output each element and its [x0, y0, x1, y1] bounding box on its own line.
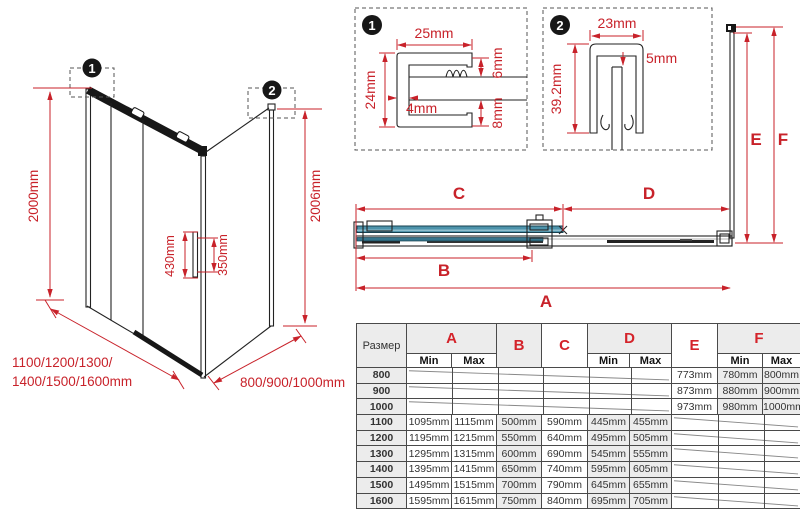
detail-2-rail-profile: 2 23mm 5mm 39.2mm	[543, 8, 712, 150]
na-cell	[672, 493, 800, 509]
callout-2: 2	[248, 81, 295, 119]
isometric-enclosure-drawing: 1 2 2000mm 2006mm 430mm	[0, 0, 350, 430]
dim-b-label: B	[438, 261, 450, 280]
width-sizes-line2: 1400/1500/1600mm	[12, 374, 132, 389]
b-cell: 550mm	[497, 430, 542, 446]
height-left-dim: 2000mm	[26, 170, 41, 223]
d-min-cell: 445mm	[588, 415, 630, 431]
d-max-cell: 705mm	[630, 493, 672, 509]
width-sizes-line1: 1100/1200/1300/	[12, 355, 113, 370]
dim-a-label: A	[540, 292, 552, 311]
f-min-cell: 780mm	[718, 368, 763, 384]
c-cell: 740mm	[542, 462, 588, 478]
a-max-cell: 1515mm	[452, 477, 497, 493]
detail2-top-dim: 23mm	[598, 15, 637, 31]
col-a-header: A	[407, 324, 497, 354]
col-b-header: B	[497, 324, 542, 368]
size-cell: 1200	[357, 430, 407, 446]
detail2-gap-dim: 5mm	[646, 50, 677, 66]
callout-1-number: 1	[88, 61, 95, 76]
na-cell	[672, 415, 800, 431]
detail1-web-dim: 4mm	[406, 100, 437, 116]
table-header-row: Размер A B C D E F	[357, 324, 800, 354]
na-cell	[407, 383, 672, 399]
f-min-header: Min	[718, 354, 763, 368]
handle-spacing-dim: 350mm	[216, 234, 230, 276]
na-cell	[672, 462, 800, 478]
d-min-header: Min	[588, 354, 630, 368]
a-max-cell: 1615mm	[452, 493, 497, 509]
table-row: 1500 1495mm 1515mm 700mm 790mm 645mm 655…	[357, 477, 800, 493]
a-max-cell: 1115mm	[452, 415, 497, 431]
c-cell: 590mm	[542, 415, 588, 431]
a-max-cell: 1315mm	[452, 446, 497, 462]
size-cell: 1100	[357, 415, 407, 431]
a-min-cell: 1095mm	[407, 415, 452, 431]
size-cell: 1500	[357, 477, 407, 493]
plan-dimensions: C D B A E F	[356, 27, 788, 311]
d-max-cell: 555mm	[630, 446, 672, 462]
table-row: 1100 1095mm 1115mm 500mm 590mm 445mm 455…	[357, 415, 800, 431]
d-max-cell: 605mm	[630, 462, 672, 478]
table-row: 1600 1595mm 1615mm 750mm 840mm 695mm 705…	[357, 493, 800, 509]
c-cell: 640mm	[542, 430, 588, 446]
f-min-cell: 880mm	[718, 383, 763, 399]
d-max-cell: 455mm	[630, 415, 672, 431]
size-cell: 800	[357, 368, 407, 384]
table-row: 800 773mm 780mm 800mm	[357, 368, 800, 384]
enclosure-structure	[86, 89, 275, 378]
e-cell: 973mm	[672, 399, 718, 415]
na-cell	[672, 477, 800, 493]
na-cell	[407, 368, 672, 384]
table-row: 1000 973mm 980mm 1000mm	[357, 399, 800, 415]
b-cell: 700mm	[497, 477, 542, 493]
detail-1-wall-profile: 1 25mm 24mm 4mm 6mm 8mm	[355, 8, 527, 150]
a-min-cell: 1595mm	[407, 493, 452, 509]
col-f-header: F	[718, 324, 800, 354]
size-dimension-table: Размер A B C D E F Min Max Min Max Min M…	[356, 323, 800, 509]
a-max-header: Max	[452, 354, 497, 368]
c-cell: 840mm	[542, 493, 588, 509]
door-handle	[193, 232, 201, 277]
a-min-cell: 1195mm	[407, 430, 452, 446]
d-max-cell: 655mm	[630, 477, 672, 493]
b-cell: 500mm	[497, 415, 542, 431]
height-right-dim: 2006mm	[308, 170, 323, 223]
e-cell: 773mm	[672, 368, 718, 384]
a-min-cell: 1395mm	[407, 462, 452, 478]
na-cell	[672, 446, 800, 462]
col-e-header: E	[672, 324, 718, 368]
e-cell: 873mm	[672, 383, 718, 399]
dim-f-label: F	[778, 130, 788, 149]
table-row: 1200 1195mm 1215mm 550mm 640mm 495mm 505…	[357, 430, 800, 446]
a-max-cell: 1215mm	[452, 430, 497, 446]
detail1-gap-top-dim: 6mm	[489, 47, 505, 78]
d-min-cell: 495mm	[588, 430, 630, 446]
detail-2-number: 2	[556, 18, 563, 33]
table-row: 1400 1395mm 1415mm 650mm 740mm 595mm 605…	[357, 462, 800, 478]
c-cell: 790mm	[542, 477, 588, 493]
size-cell: 1600	[357, 493, 407, 509]
depth-sizes: 800/900/1000mm	[240, 375, 345, 390]
a-min-cell: 1295mm	[407, 446, 452, 462]
size-cell: 1300	[357, 446, 407, 462]
a-min-header: Min	[407, 354, 452, 368]
na-cell	[407, 399, 672, 415]
gasket-icon	[446, 70, 467, 77]
size-cell: 900	[357, 383, 407, 399]
na-cell	[672, 430, 800, 446]
profile-details-and-plan-view: 1 25mm 24mm 4mm 6mm 8mm	[350, 0, 800, 322]
detail1-left-dim: 24mm	[362, 71, 378, 110]
size-header-cell: Размер	[357, 324, 407, 368]
b-cell: 750mm	[497, 493, 542, 509]
detail1-top-dim: 25mm	[415, 25, 454, 41]
size-cell: 1400	[357, 462, 407, 478]
d-min-cell: 595mm	[588, 462, 630, 478]
c-cell: 690mm	[542, 446, 588, 462]
d-min-cell: 695mm	[588, 493, 630, 509]
dim-d-label: D	[643, 184, 655, 203]
size-cell: 1000	[357, 399, 407, 415]
col-d-header: D	[588, 324, 672, 354]
dim-e-label: E	[750, 130, 761, 149]
f-min-cell: 980mm	[718, 399, 763, 415]
f-max-cell: 800mm	[763, 368, 800, 384]
f-max-header: Max	[763, 354, 800, 368]
table-row: 1300 1295mm 1315mm 600mm 690mm 545mm 555…	[357, 446, 800, 462]
f-max-cell: 1000mm	[763, 399, 800, 415]
clip-icon	[601, 115, 633, 130]
col-c-header: C	[542, 324, 588, 368]
a-max-cell: 1415mm	[452, 462, 497, 478]
detail-1-number: 1	[368, 18, 375, 33]
b-cell: 650mm	[497, 462, 542, 478]
f-max-cell: 900mm	[763, 383, 800, 399]
plan-view	[354, 24, 736, 248]
callout-2-number: 2	[268, 83, 275, 98]
a-min-cell: 1495mm	[407, 477, 452, 493]
d-min-cell: 645mm	[588, 477, 630, 493]
d-min-cell: 545mm	[588, 446, 630, 462]
technical-drawing-sheet: 1 2 2000mm 2006mm 430mm	[0, 0, 800, 512]
d-max-header: Max	[630, 354, 672, 368]
table-row: 900 873mm 880mm 900mm	[357, 383, 800, 399]
d-max-cell: 505mm	[630, 430, 672, 446]
b-cell: 600mm	[497, 446, 542, 462]
dim-c-label: C	[453, 184, 465, 203]
detail1-gap-bottom-dim: 8mm	[489, 97, 505, 128]
detail2-height-dim: 39.2mm	[548, 64, 564, 115]
handle-length-dim: 430mm	[163, 235, 177, 277]
